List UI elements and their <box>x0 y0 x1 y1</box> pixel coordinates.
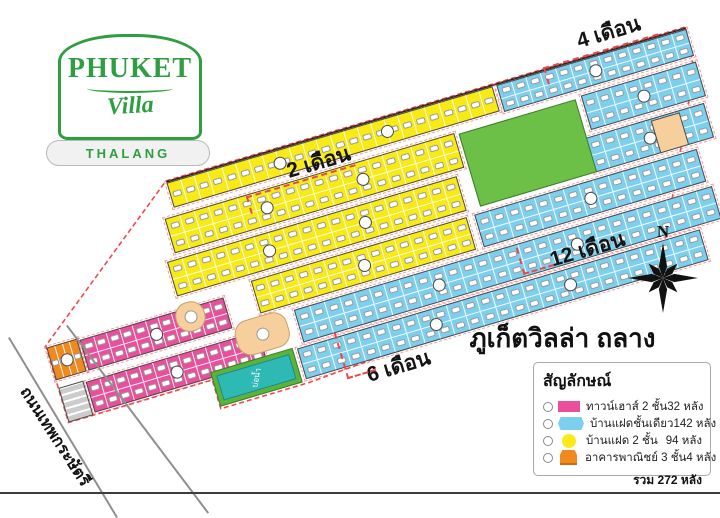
lot-number-chip <box>307 243 317 251</box>
lot-number-chip <box>182 356 192 364</box>
lot-number-chip <box>620 132 630 140</box>
lot-number-chip <box>333 191 343 199</box>
lot-number-chip <box>74 352 82 360</box>
lot-number-chip <box>437 204 447 212</box>
lot-number-chip <box>484 97 494 105</box>
lot-number-chip <box>679 47 689 55</box>
legend-bullet-icon <box>543 419 553 429</box>
lot-number-chip <box>318 282 328 290</box>
lot-number-chip <box>468 279 478 287</box>
lot-number-chip <box>393 217 403 225</box>
lot-number-chip <box>314 307 324 315</box>
lot-number-chip <box>385 245 395 253</box>
lot-number-chip <box>222 345 232 353</box>
lot-number-chip <box>344 299 354 307</box>
legend-item-count: 142 หลัง <box>674 415 717 433</box>
lot-number-chip <box>389 200 399 208</box>
lot-number-chip <box>661 180 671 188</box>
lot-number-chip <box>406 319 416 327</box>
lot-number-chip <box>218 225 228 233</box>
lot-number-chip <box>694 110 704 118</box>
legend-bullet-icon <box>543 402 553 412</box>
lot-number-chip <box>478 259 488 267</box>
lot-number-chip <box>370 249 380 257</box>
lot-number-chip <box>423 292 433 300</box>
lot-number-chip <box>591 115 601 123</box>
lot-number-chip <box>403 281 413 289</box>
lot-number-chip <box>416 117 426 125</box>
legend-item-twin-house-1-storey: บ้านแฝดชั้นเดียว142 หลัง <box>543 415 702 432</box>
lot-number-chip <box>329 303 339 311</box>
lot-number-chip <box>350 230 360 238</box>
lot-number-chip <box>586 98 596 106</box>
lot-number-chip <box>275 294 285 302</box>
lot-number-chip <box>374 205 384 213</box>
lot-number-chip <box>590 141 600 149</box>
legend-bullet-icon <box>543 453 553 463</box>
lot-number-chip <box>273 234 283 242</box>
lot-number-chip <box>101 353 111 361</box>
lot-number-chip <box>647 184 657 192</box>
lot-number-chip <box>140 341 150 349</box>
lot-number-chip <box>418 252 428 260</box>
legend-item-count: 4 หลัง <box>686 449 716 467</box>
legend-item-count: 94 หลัง <box>666 432 702 450</box>
lot-number-chip <box>642 210 652 218</box>
lot-number-chip <box>481 297 491 305</box>
lot-number-chip <box>317 346 327 354</box>
lot-number-chip <box>201 256 211 264</box>
lot-number-chip <box>451 306 461 314</box>
lot-number-chip <box>213 177 223 185</box>
pond-label: บ่อน้ำ <box>248 366 265 388</box>
lot-number-chip <box>515 81 525 89</box>
lot-number-chip <box>232 221 242 229</box>
lot-number-chip <box>606 68 616 76</box>
lot-number-chip <box>515 303 525 311</box>
lot-number-chip <box>577 77 587 85</box>
lot-number-chip <box>568 190 578 198</box>
lot-number-chip <box>227 204 237 212</box>
compass-north-label: N <box>618 222 708 242</box>
lot-number-chip <box>509 208 519 216</box>
lot-number-chip <box>444 140 454 148</box>
lot-number-chip <box>691 213 701 221</box>
lot-number-chip <box>675 34 685 42</box>
lot-number-chip <box>429 144 439 152</box>
lot-number-chip <box>130 372 140 380</box>
lot-number-chip <box>319 323 329 331</box>
lot-number-chip <box>706 209 716 217</box>
lot-number-chip <box>408 213 418 221</box>
lot-number-chip <box>175 238 185 246</box>
lot-number-chip <box>123 330 133 338</box>
lot-number-chip <box>691 85 701 93</box>
lot-number-chip <box>456 223 466 231</box>
lot-number-chip <box>313 266 323 274</box>
lot-number-chip <box>359 294 369 302</box>
lot-number-chip <box>292 247 302 255</box>
lot-number-chip <box>342 257 352 265</box>
lot-number-chip <box>443 109 453 117</box>
lot-number-chip <box>602 197 612 205</box>
compass-star-icon <box>627 242 699 314</box>
lot-number-chip <box>446 183 456 191</box>
lot-number-chip <box>114 349 124 357</box>
lot-number-chip <box>528 219 538 227</box>
lot-number-chip <box>662 94 672 102</box>
lot-number-chip <box>303 286 313 294</box>
hex-swatch-icon <box>558 417 584 430</box>
lot-number-chip <box>530 299 540 307</box>
lot-number-chip <box>510 288 520 296</box>
lot-number-chip <box>375 265 385 273</box>
lot-number-chip <box>403 196 413 204</box>
lot-number-chip <box>191 277 201 285</box>
lot-number-chip <box>346 273 356 281</box>
lot-number-chip <box>379 221 389 229</box>
lot-number-chip <box>461 239 471 247</box>
project-title: ภูเก็ตวิลล่า ถลาง <box>420 318 705 359</box>
lot-number-chip <box>134 387 144 395</box>
lot-number-chip <box>348 187 358 195</box>
lot-number-chip <box>598 182 608 190</box>
lot-number-chip <box>451 200 461 208</box>
lot-number-chip <box>276 208 286 216</box>
lot-number-chip <box>299 270 309 278</box>
lot-number-chip <box>136 326 146 334</box>
lot-number-chip <box>642 169 652 177</box>
lot-number-chip <box>204 230 214 238</box>
lot-number-chip <box>499 228 509 236</box>
lot-number-chip <box>632 189 642 197</box>
lot-number-chip <box>249 260 259 268</box>
legend-bullet-icon <box>543 436 553 446</box>
lot <box>215 313 231 330</box>
lot-number-chip <box>497 270 507 278</box>
lot-number-chip <box>482 275 492 283</box>
garden-circle-icon <box>254 326 270 342</box>
lot-number-chip <box>430 113 440 121</box>
lot-number-chip <box>406 170 416 178</box>
lot-number-chip <box>495 293 505 301</box>
lot-number-chip <box>162 319 172 327</box>
lot-number-chip <box>548 86 558 94</box>
lot-number-chip <box>543 215 553 223</box>
lot-number-chip <box>501 86 511 94</box>
lot-number-chip <box>558 211 568 219</box>
lot-number-chip <box>698 127 708 135</box>
lot-number-chip <box>619 106 629 114</box>
lot-number-chip <box>391 174 401 182</box>
lot-number-chip <box>470 101 480 109</box>
lot-number-chip <box>299 312 309 320</box>
lot-number-chip <box>614 90 624 98</box>
lot-number-chip <box>463 263 473 271</box>
lot-number-chip <box>493 254 503 262</box>
legend-item-townhouse-2-storey: ทาวน์เฮาส์ 2 ชั้น32 หลัง <box>543 398 702 415</box>
lot-number-chip <box>147 383 157 391</box>
lot-number-chip <box>544 294 554 302</box>
lot-number-chip <box>189 234 199 242</box>
lot-number-chip <box>90 384 100 392</box>
lot-number-chip <box>172 189 182 197</box>
lot-number-chip <box>665 51 675 59</box>
lot-number-chip <box>676 89 686 97</box>
lot-number-chip <box>701 193 711 201</box>
lot-number-chip <box>589 281 599 289</box>
lot-number-chip <box>505 99 515 107</box>
lot-number-chip <box>661 38 671 46</box>
lot-number-chip <box>453 283 463 291</box>
lot-number-chip <box>206 273 216 281</box>
lot-number-chip <box>634 102 644 110</box>
lot-number-chip <box>362 133 372 141</box>
lot-number-chip <box>671 202 681 210</box>
lot-number-chip <box>479 217 489 225</box>
lot-number-chip <box>288 230 298 238</box>
lot-number-chip <box>538 199 548 207</box>
lot-number-chip <box>226 173 236 181</box>
lot-number-chip <box>363 310 373 318</box>
lot-number-chip <box>205 322 215 330</box>
lot-number-chip <box>336 234 346 242</box>
logo-brand-text: PHUKET <box>68 55 192 83</box>
lot-number-chip <box>573 206 583 214</box>
lot-number-chip <box>334 319 344 327</box>
lot-number-chip <box>345 213 355 221</box>
lot-number-chip <box>321 360 331 368</box>
lot-number-chip <box>484 232 494 240</box>
legend-item-count: 32 หลัง <box>667 398 703 416</box>
lot-number-chip <box>386 157 396 165</box>
legend-rows: ทาวน์เฮาส์ 2 ชั้น32 หลังบ้านแฝดชั้นเดียว… <box>543 398 702 466</box>
lot-number-chip <box>627 173 637 181</box>
lot-number-chip <box>417 192 427 200</box>
lot-number-chip <box>290 204 300 212</box>
legend-item-commercial-3-storey: อาคารพาณิชย์ 3 ชั้น4 หลัง <box>543 449 702 466</box>
lot-number-chip <box>302 350 312 358</box>
lot-number-chip <box>585 266 595 274</box>
legend-item-label: บ้านแฝดชั้นเดียว <box>590 415 674 433</box>
lot-number-chip <box>348 137 358 145</box>
lot-number-chip <box>428 232 438 240</box>
legend-item-label: บ้านแฝด 2 ชั้น <box>586 432 666 450</box>
lot-number-chip <box>650 56 660 64</box>
lot-number-chip <box>270 279 280 287</box>
lot-number-chip <box>617 193 627 201</box>
lot-number-chip <box>372 161 382 169</box>
lot-number-chip <box>348 314 358 322</box>
lot-number-chip <box>605 111 615 119</box>
bottom-frame-line <box>0 492 720 494</box>
lot-number-chip <box>396 338 406 346</box>
lot-number-chip <box>691 171 701 179</box>
lot-number-chip <box>553 195 563 203</box>
lot-number-chip <box>393 301 403 309</box>
lot-number-chip <box>143 368 153 376</box>
lot-number-chip <box>209 348 219 356</box>
lot-number-chip <box>331 217 341 225</box>
lot-number-chip <box>240 169 250 177</box>
lot-number-chip <box>187 260 197 268</box>
rect-swatch-icon <box>558 401 580 412</box>
lot-number-chip <box>256 283 266 291</box>
lot-number-chip <box>621 64 631 72</box>
lot-number-chip <box>302 226 312 234</box>
lot-number-chip <box>448 268 458 276</box>
lot-number-chip <box>610 153 620 161</box>
legend-item-label: ทาวน์เฮาส์ 2 ชั้น <box>586 398 667 416</box>
lot-number-chip <box>184 217 194 225</box>
lot <box>702 203 720 222</box>
lot-number-chip <box>247 217 257 225</box>
lot-number-chip <box>676 176 686 184</box>
lot-number-chip <box>434 161 444 169</box>
lot-number-chip <box>605 136 615 144</box>
lot-number-chip <box>156 364 166 372</box>
lot-number-chip <box>457 105 467 113</box>
lot-number-chip <box>671 160 681 168</box>
logo-swash-line <box>87 84 173 93</box>
lot-number-chip <box>401 153 411 161</box>
lot-number-chip <box>657 77 667 85</box>
lot-number-chip <box>166 333 176 341</box>
lot-number-chip <box>378 306 388 314</box>
lot-number-chip <box>686 68 696 76</box>
lot-number-chip <box>215 252 225 260</box>
lot-number-chip <box>447 244 457 252</box>
lot-number-chip <box>196 352 206 360</box>
lot-number-chip <box>186 185 196 193</box>
lot-number-chip <box>604 277 614 285</box>
legend-title: สัญลักษณ์ <box>543 369 702 394</box>
lot-number-chip <box>332 277 342 285</box>
lot-number-chip <box>373 290 383 298</box>
lot-number-chip <box>160 379 170 387</box>
lot-number-chip <box>600 262 610 270</box>
lot-number-chip <box>404 256 414 264</box>
lot-number-chip <box>640 144 650 152</box>
lot-number-chip <box>305 200 315 208</box>
lot-number-chip <box>525 284 535 292</box>
lot-number-chip <box>377 178 387 186</box>
lot-number-chip <box>327 262 337 270</box>
lot-number-chip <box>636 60 646 68</box>
lot-number-chip <box>319 195 329 203</box>
lot-number-chip <box>220 268 230 276</box>
lot-number-chip <box>97 338 107 346</box>
lot-number-chip <box>563 81 573 89</box>
lot-number-chip <box>284 274 294 282</box>
lot-number-chip <box>321 238 331 246</box>
lot-number-chip <box>643 81 653 89</box>
lot-number-chip <box>500 308 510 316</box>
lot-number-chip <box>540 280 550 288</box>
lot-number-chip <box>408 297 418 305</box>
lot-number-chip <box>466 302 476 310</box>
garden-circle-icon <box>182 308 198 324</box>
lot-number-chip <box>94 398 104 406</box>
lot-number-chip <box>422 209 432 217</box>
lot-number-chip <box>108 395 118 403</box>
lot-number-chip <box>612 177 622 185</box>
lot-number-chip <box>686 155 696 163</box>
lot-number-chip <box>442 228 452 236</box>
lot-number-chip <box>524 204 534 212</box>
lot-number-chip <box>432 187 442 195</box>
lot-number-chip <box>177 281 187 289</box>
lot-number-chip <box>413 236 423 244</box>
lot-number-chip <box>494 212 504 220</box>
lot-number-chip <box>199 181 209 189</box>
lot-number-chip <box>304 328 314 336</box>
lot-number-chip <box>418 276 428 284</box>
legend-total: รวม 272 หลัง <box>543 471 702 490</box>
lot-number-chip <box>600 94 610 102</box>
lot <box>457 234 475 253</box>
lot-number-chip <box>316 222 326 230</box>
lot-number-chip <box>278 251 288 259</box>
circle-swatch-icon <box>562 434 576 448</box>
lot-number-chip <box>657 164 667 172</box>
lot-number-chip <box>656 206 666 214</box>
lot-number-chip <box>376 328 386 336</box>
lot <box>687 166 705 185</box>
lot-number-chip <box>260 299 270 307</box>
lot-number-chip <box>170 221 180 229</box>
lot-number-chip <box>449 157 459 165</box>
lot-number-chip <box>388 285 398 293</box>
lot-number-chip <box>420 165 430 173</box>
lot-number-chip <box>514 224 524 232</box>
lot-number-chip <box>530 77 540 85</box>
lot-number-chip <box>625 149 635 157</box>
lot-number-chip <box>116 376 126 384</box>
logo-script-text: Villa <box>106 92 154 121</box>
lot-number-chip <box>389 261 399 269</box>
lot-number-chip <box>289 290 299 298</box>
lot-number-chip <box>200 367 210 375</box>
lot-number-chip <box>244 243 254 251</box>
lot-number-chip <box>415 149 425 157</box>
lot-number-chip <box>671 73 681 81</box>
lot-number-chip <box>595 157 605 165</box>
lot-number-chip <box>534 90 544 98</box>
lot-number-chip <box>686 197 696 205</box>
lot-number-chip <box>199 213 209 221</box>
lot-number-chip <box>187 371 197 379</box>
lot-number-chip <box>381 343 391 351</box>
compass-rose: N <box>618 222 708 319</box>
lot-number-chip <box>306 365 316 373</box>
lot-number-chip <box>127 345 137 353</box>
building-swatch-icon <box>560 450 577 465</box>
lot-number-chip <box>172 264 182 272</box>
lot-number-chip <box>391 324 401 332</box>
lot <box>676 43 693 59</box>
lot-number-chip <box>402 121 412 129</box>
lot-number-chip <box>214 303 224 311</box>
lot-number-chip <box>213 208 223 216</box>
lot-number-chip <box>230 247 240 255</box>
lot-number-chip <box>110 334 120 342</box>
lot-number-chip <box>254 165 264 173</box>
legend-box: สัญลักษณ์ ทาวน์เฮาส์ 2 ชั้น32 หลังบ้านแฝ… <box>533 362 711 476</box>
lot-number-chip <box>218 318 228 326</box>
legend-item-label: อาคารพาณิชย์ 3 ชั้น <box>585 449 686 467</box>
lot-number-chip <box>432 248 442 256</box>
